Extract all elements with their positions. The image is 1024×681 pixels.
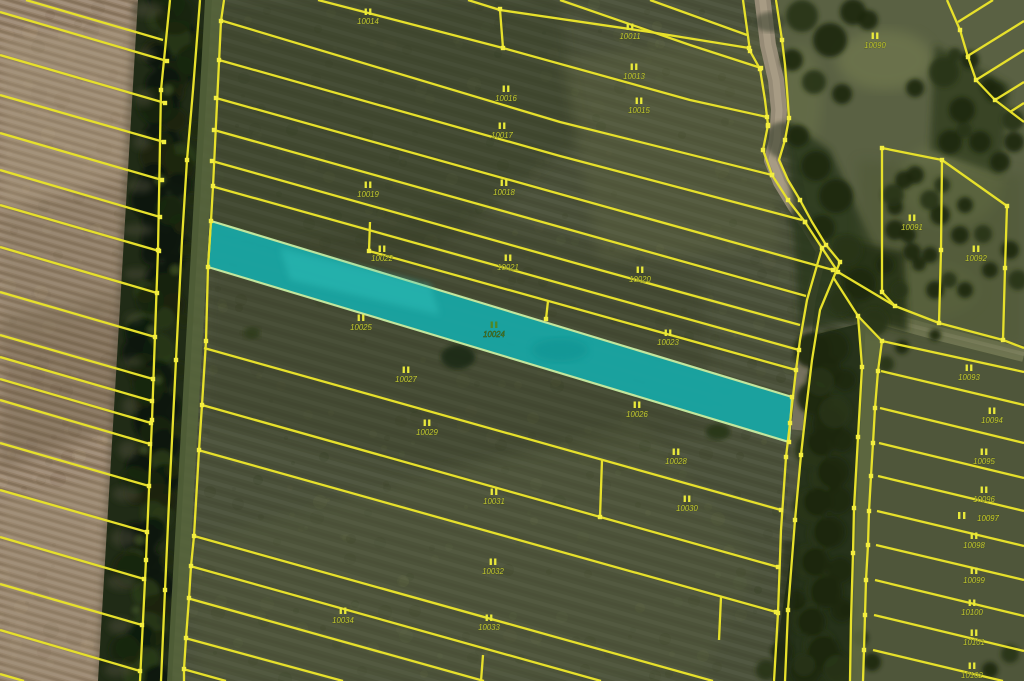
svg-text:10020: 10020 — [629, 275, 651, 284]
svg-text:10100: 10100 — [961, 608, 983, 617]
svg-text:10019: 10019 — [357, 190, 379, 199]
svg-text:10013: 10013 — [623, 72, 645, 81]
svg-text:10095: 10095 — [973, 457, 995, 466]
svg-text:10015: 10015 — [628, 106, 650, 115]
svg-text:10092: 10092 — [965, 254, 987, 263]
svg-text:10026: 10026 — [626, 410, 648, 419]
svg-text:10032: 10032 — [482, 567, 504, 576]
svg-text:10096: 10096 — [973, 495, 995, 504]
svg-text:10091: 10091 — [901, 223, 923, 232]
svg-text:10094: 10094 — [981, 416, 1003, 425]
svg-text:10033: 10033 — [478, 623, 500, 632]
svg-text:10030: 10030 — [676, 504, 698, 513]
svg-text:10014: 10014 — [357, 17, 379, 26]
svg-text:10102: 10102 — [961, 671, 983, 680]
svg-text:10023: 10023 — [657, 338, 679, 347]
svg-text:10021: 10021 — [497, 263, 519, 272]
svg-text:10098: 10098 — [963, 541, 985, 550]
svg-text:10028: 10028 — [665, 457, 687, 466]
svg-text:10011: 10011 — [619, 32, 640, 41]
svg-text:10016: 10016 — [495, 94, 517, 103]
svg-text:10025: 10025 — [350, 323, 372, 332]
svg-text:10101: 10101 — [963, 638, 985, 647]
svg-text:10093: 10093 — [958, 373, 980, 382]
svg-text:10099: 10099 — [963, 576, 985, 585]
svg-text:10029: 10029 — [416, 428, 438, 437]
svg-text:10090: 10090 — [864, 41, 886, 50]
svg-text:10027: 10027 — [395, 375, 417, 384]
svg-text:10031: 10031 — [483, 497, 505, 506]
svg-text:10024: 10024 — [483, 330, 505, 339]
svg-text:10017: 10017 — [491, 131, 513, 140]
svg-text:10022: 10022 — [371, 254, 393, 263]
svg-text:10097: 10097 — [977, 514, 999, 523]
svg-text:10018: 10018 — [493, 188, 515, 197]
svg-text:10034: 10034 — [332, 616, 354, 625]
